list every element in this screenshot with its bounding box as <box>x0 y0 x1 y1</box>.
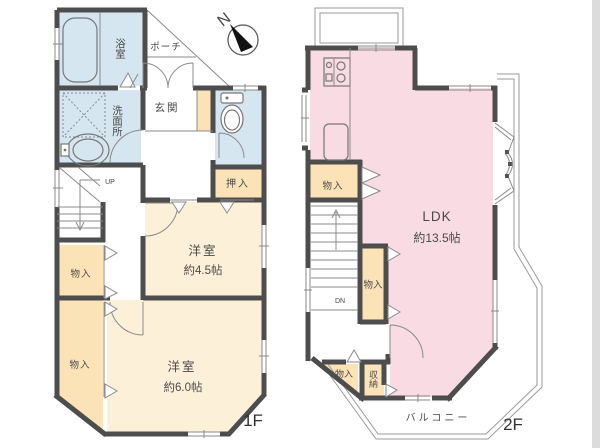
page-edge-strip <box>592 0 600 448</box>
bathroom-label: 浴室 <box>114 38 126 59</box>
shuno-label: 収納 <box>368 369 378 389</box>
f2-storage-left-label: 物入 <box>322 180 343 192</box>
f2-left-bay-window <box>301 95 309 142</box>
stairs-2f-arrow <box>332 210 340 250</box>
room45-name-label: 洋室 <box>188 243 217 258</box>
balcony-label: バルコニー <box>406 412 471 424</box>
compass-icon: N <box>215 10 258 55</box>
stairs-1f <box>57 167 103 230</box>
bow-window-bottom-sash <box>495 176 514 204</box>
bow-window-hinge-1 <box>505 150 509 154</box>
bow-window-hinge-3 <box>505 174 509 178</box>
f2-storage-bottom-label: 物入 <box>335 368 353 379</box>
f2-left-window <box>304 268 312 312</box>
floor1-title: 1F <box>243 411 263 430</box>
washroom-area <box>59 90 141 163</box>
storage-upper-label: 物入 <box>70 268 91 280</box>
entrance-label: 玄関 <box>155 101 180 114</box>
stairs-1f-arrow <box>76 186 84 230</box>
north-balcony-inner <box>320 13 398 43</box>
storage-lower-label: 物入 <box>69 359 90 371</box>
ldk-area <box>310 48 493 397</box>
bow-window-top-sash <box>495 123 514 153</box>
floor2-title: 2F <box>503 415 523 434</box>
stairs-up-label: UP <box>105 179 115 186</box>
ldk-name-label: LDK <box>422 209 451 224</box>
toilet-icon <box>221 93 243 133</box>
stairs-dn-label: DN <box>335 298 345 305</box>
room60-name-label: 洋室 <box>167 359 196 374</box>
storage-upper-marker-1 <box>105 246 117 260</box>
room45-size-label: 約4.5帖 <box>184 263 223 277</box>
stairs-2f <box>311 206 358 310</box>
bow-window-hinge-2 <box>508 162 512 166</box>
floorplan-page: N 浴室 ポーチ 玄関 洗面所 押入 物入 物入 洋室 約4.5帖 洋室 約6.… <box>0 0 600 448</box>
f2-storage-bottom-marker <box>347 350 361 362</box>
bow-window <box>495 123 514 204</box>
ldk-size-label: 約13.5帖 <box>413 230 460 245</box>
f2-storage-mid-label: 物入 <box>363 279 383 291</box>
stair-window <box>53 170 63 207</box>
storage-upper-marker-2 <box>105 286 117 299</box>
floor2-room-fills <box>310 48 493 398</box>
bathroom-area <box>59 12 143 86</box>
room60-size-label: 約6.0帖 <box>164 380 203 394</box>
washroom-label: 洗面所 <box>111 105 123 137</box>
entrance-door-right <box>168 63 193 88</box>
north-balcony-outline <box>315 8 403 48</box>
porch-label: ポーチ <box>150 42 182 53</box>
floorplan-svg: N 浴室 ポーチ 玄関 洗面所 押入 物入 物入 洋室 約4.5帖 洋室 約6.… <box>0 0 600 448</box>
oshiire-label: 押入 <box>226 177 250 190</box>
